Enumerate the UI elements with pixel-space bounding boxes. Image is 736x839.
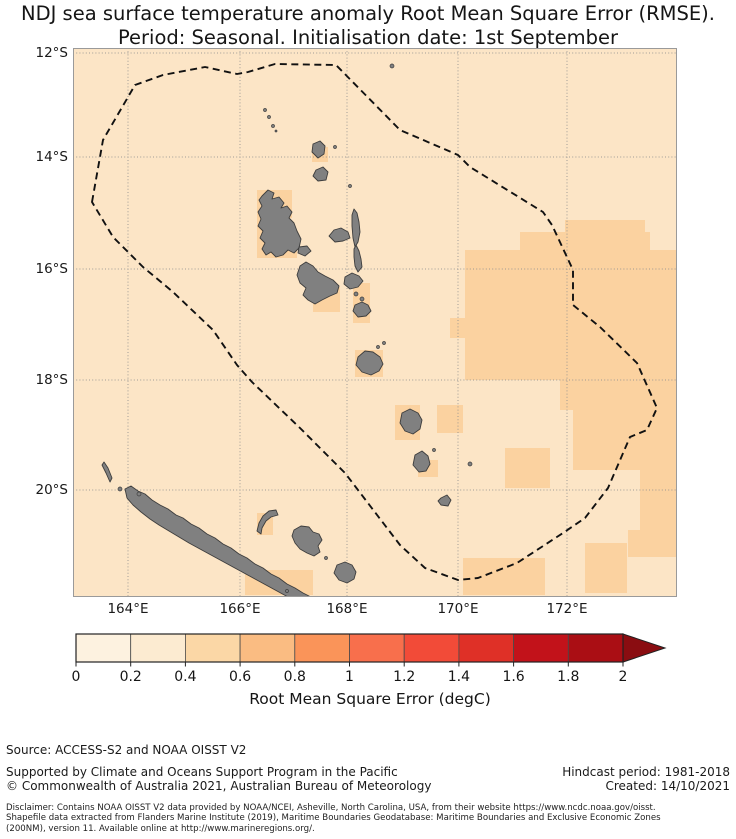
island-tiga bbox=[325, 557, 328, 560]
disclaimer-text: Disclaimer: Contains NOAA OISST V2 data … bbox=[6, 803, 732, 834]
colorbar-tick-label: 1.2 bbox=[393, 669, 415, 685]
colorbar-segment bbox=[240, 634, 295, 662]
disclaimer-line3: (200NM), version 11. Available online at… bbox=[6, 824, 315, 834]
rmse-patch bbox=[437, 405, 463, 433]
colorbar-tick-label: 1.4 bbox=[448, 669, 470, 685]
map-area bbox=[73, 48, 677, 597]
colorbar-tick-label: 0.8 bbox=[284, 669, 306, 685]
rmse-patch bbox=[465, 250, 677, 380]
map-svg bbox=[73, 48, 677, 597]
rmse-patch bbox=[628, 530, 677, 557]
island-futuna bbox=[468, 462, 472, 466]
colorbar-tick-label: 1.6 bbox=[502, 669, 524, 685]
colorbar-tick-label: 0.4 bbox=[174, 669, 196, 685]
colorbar-tick-label: 1.8 bbox=[557, 669, 579, 685]
colorbar-segment bbox=[568, 634, 623, 662]
rmse-patch bbox=[640, 470, 677, 530]
lat-tick-label: 18°S bbox=[18, 372, 68, 388]
rmse-patch bbox=[505, 448, 550, 488]
colorbar-segment bbox=[459, 634, 514, 662]
colorbar-segment bbox=[76, 634, 131, 662]
rmse-patch bbox=[463, 558, 545, 595]
rmse-patch bbox=[565, 220, 645, 234]
created-date-text: Created: 14/10/2021 bbox=[605, 779, 730, 793]
lat-tick-label: 16°S bbox=[18, 261, 68, 277]
source-text: Source: ACCESS-S2 and NOAA OISST V2 bbox=[6, 743, 246, 757]
island-mere-lava bbox=[349, 185, 352, 188]
lat-tick-label: 20°S bbox=[18, 482, 68, 498]
island-north-islet bbox=[390, 64, 394, 68]
rmse-patch bbox=[573, 380, 677, 470]
rmse-patch bbox=[585, 543, 627, 593]
island-nguna bbox=[377, 346, 380, 349]
colorbar-label: Root Mean Square Error (degC) bbox=[70, 690, 670, 708]
island-lopevi bbox=[360, 297, 364, 301]
colorbar-extend-arrow bbox=[623, 634, 665, 662]
lat-tick-label: 14°S bbox=[18, 149, 68, 165]
supported-text: Supported by Climate and Oceans Support … bbox=[6, 765, 398, 779]
island-nc-islet-2 bbox=[137, 492, 141, 496]
colorbar-segment bbox=[350, 634, 405, 662]
colorbar-tick-label: 1 bbox=[345, 669, 354, 685]
island-nc-islet-1 bbox=[118, 487, 122, 491]
colorbar-segment bbox=[185, 634, 240, 662]
island-torres-2 bbox=[268, 116, 271, 119]
rmse-patch bbox=[520, 232, 650, 250]
page-title-line1: NDJ sea surface temperature anomaly Root… bbox=[0, 2, 736, 25]
island-south-islet bbox=[286, 590, 289, 593]
island-torres-4 bbox=[275, 130, 277, 132]
lat-tick-label: 12°S bbox=[18, 45, 68, 61]
island-torres-1 bbox=[264, 109, 267, 112]
island-paama bbox=[354, 292, 358, 296]
lon-tick-label: 166°E bbox=[208, 601, 272, 617]
island-mota bbox=[334, 146, 337, 149]
hindcast-period-text: Hindcast period: 1981-2018 bbox=[562, 765, 730, 779]
colorbar-svg: 00.20.40.60.811.21.41.61.82 bbox=[0, 630, 736, 690]
colorbar-segment bbox=[404, 634, 459, 662]
island-emae bbox=[383, 342, 386, 345]
lon-tick-label: 172°E bbox=[535, 601, 599, 617]
colorbar-segment bbox=[514, 634, 569, 662]
lon-tick-label: 168°E bbox=[315, 601, 379, 617]
colorbar-tick-label: 2 bbox=[619, 669, 628, 685]
lon-tick-label: 170°E bbox=[426, 601, 490, 617]
colorbar-tick-label: 0 bbox=[72, 669, 81, 685]
colorbar-tick-label: 0.2 bbox=[120, 669, 142, 685]
colorbar-tick-label: 0.6 bbox=[229, 669, 251, 685]
disclaimer-line1: Disclaimer: Contains NOAA OISST V2 data … bbox=[6, 803, 656, 813]
lon-tick-label: 164°E bbox=[96, 601, 160, 617]
colorbar-segment bbox=[131, 634, 186, 662]
copyright-text: © Commonwealth of Australia 2021, Austra… bbox=[6, 779, 431, 793]
colorbar-segment bbox=[295, 634, 350, 662]
figure-canvas: NDJ sea surface temperature anomaly Root… bbox=[0, 0, 736, 839]
island-aniwa bbox=[433, 449, 436, 452]
island-torres-3 bbox=[272, 125, 275, 128]
disclaimer-line2: Shapefile data extracted from Flanders M… bbox=[6, 813, 661, 823]
page-title-line2: Period: Seasonal. Initialisation date: 1… bbox=[0, 26, 736, 49]
